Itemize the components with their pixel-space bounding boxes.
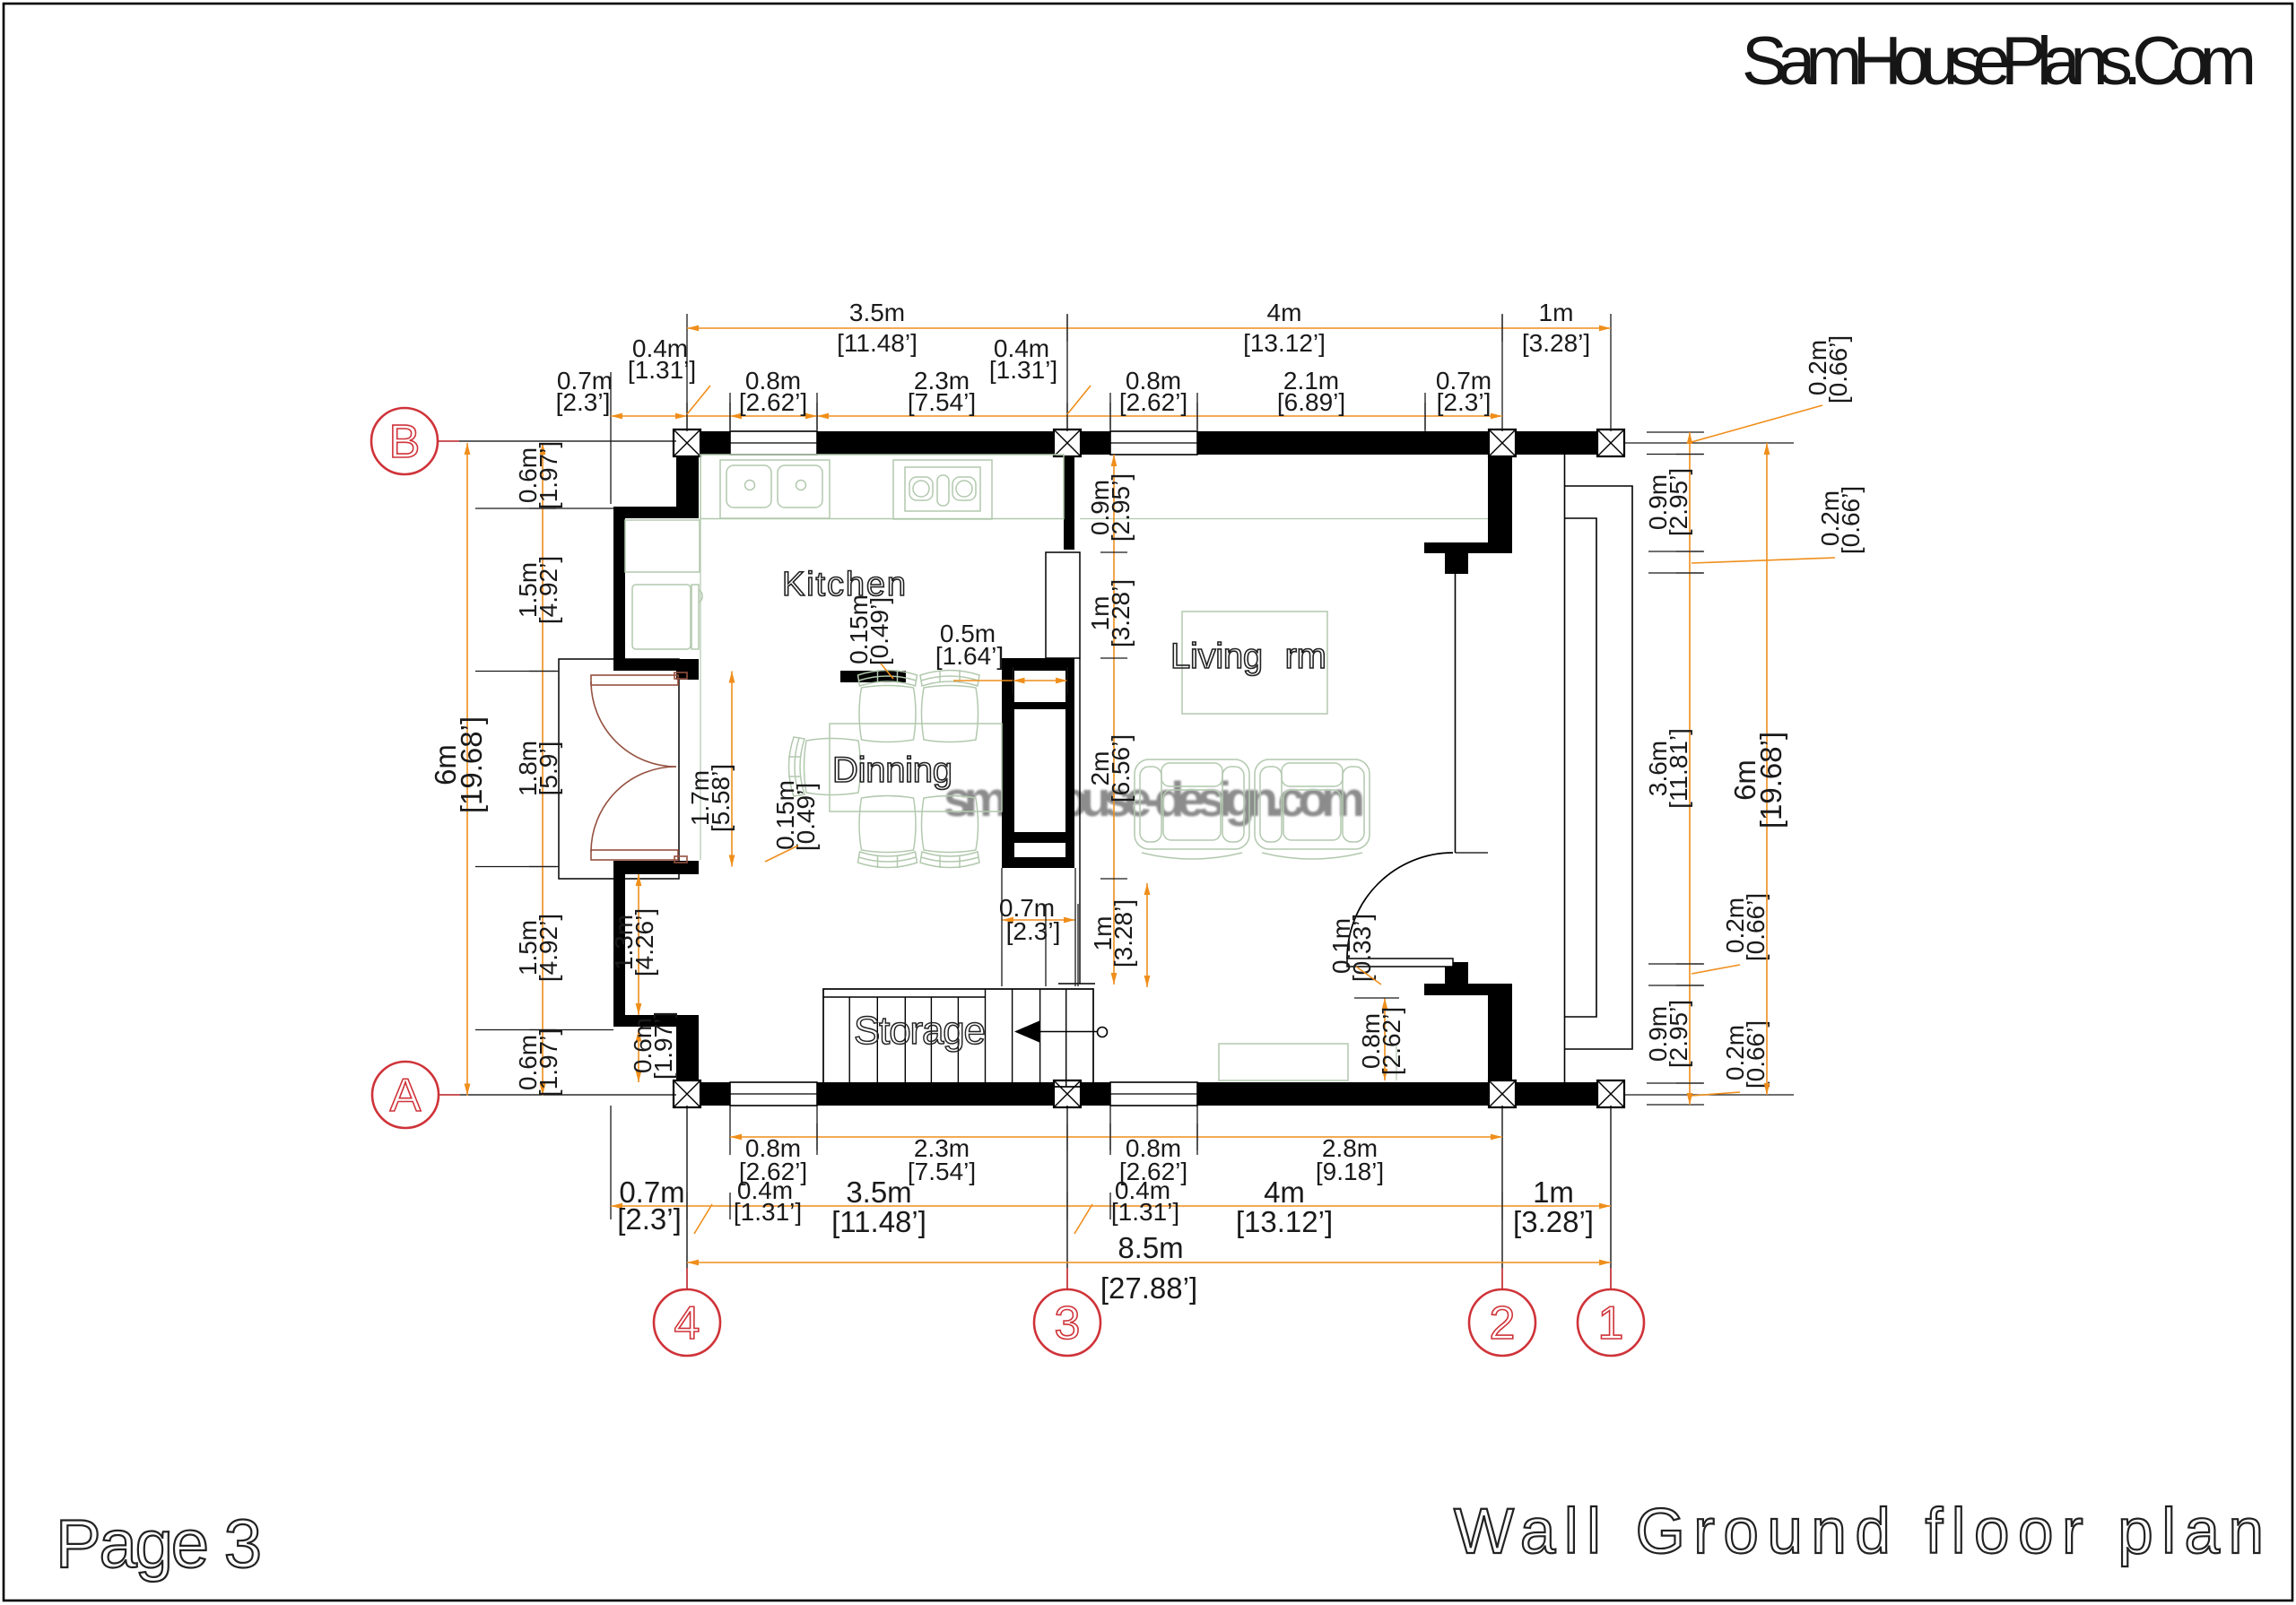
svg-text:3.5m: 3.5m — [849, 299, 905, 326]
svg-text:[1.64’]: [1.64’] — [935, 642, 1004, 670]
svg-text:[3.28’]: [3.28’] — [1107, 579, 1135, 647]
svg-text:[9.18’]: [9.18’] — [1316, 1158, 1384, 1185]
svg-text:[27.88’]: [27.88’] — [1100, 1271, 1197, 1305]
svg-text:[1.97’]: [1.97’] — [535, 1028, 562, 1097]
svg-text:[2.3’]: [2.3’] — [1437, 388, 1492, 416]
svg-text:[0.66’]: [0.66’] — [1742, 1020, 1770, 1089]
svg-text:[11.81’]: [11.81’] — [1665, 728, 1692, 809]
svg-text:[13.12’]: [13.12’] — [1243, 329, 1326, 357]
svg-text:[6.56’]: [6.56’] — [1107, 734, 1135, 802]
svg-text:[2.62’]: [2.62’] — [1378, 1007, 1405, 1075]
svg-text:[3.28’]: [3.28’] — [1109, 899, 1137, 967]
svg-text:[0.66’]: [0.66’] — [1837, 486, 1865, 554]
svg-text:[1.31’]: [1.31’] — [628, 356, 696, 384]
svg-text:[1.31’]: [1.31’] — [1111, 1198, 1179, 1226]
svg-text:A: A — [390, 1070, 422, 1122]
svg-text:[2.62’]: [2.62’] — [1119, 388, 1187, 416]
svg-text:[2.62’]: [2.62’] — [739, 388, 807, 416]
svg-text:8.5m: 8.5m — [1118, 1231, 1183, 1264]
svg-text:[2.95’]: [2.95’] — [1107, 473, 1135, 542]
svg-text:[1.97’]: [1.97’] — [535, 441, 562, 509]
svg-text:2: 2 — [1490, 1297, 1516, 1349]
svg-text:[13.12’]: [13.12’] — [1236, 1205, 1333, 1238]
svg-text:[5.9’]: [5.9’] — [535, 742, 562, 796]
svg-text:Dinning: Dinning — [832, 750, 952, 790]
svg-text:[1.31’]: [1.31’] — [734, 1198, 802, 1226]
svg-text:1m: 1m — [1533, 1176, 1574, 1209]
svg-text:[1.31’]: [1.31’] — [989, 356, 1057, 384]
svg-text:[4.92’]: [4.92’] — [535, 556, 562, 624]
svg-text:[2.95’]: [2.95’] — [1665, 468, 1692, 536]
svg-text:[11.48’]: [11.48’] — [837, 329, 918, 357]
svg-text:[2.3’]: [2.3’] — [617, 1202, 682, 1236]
svg-text:[7.54’]: [7.54’] — [908, 1158, 976, 1185]
svg-text:[19.68’]: [19.68’] — [455, 716, 488, 813]
svg-text:4m: 4m — [1267, 299, 1302, 326]
svg-text:4: 4 — [674, 1297, 700, 1349]
svg-text:SamHousePlans.Com: SamHousePlans.Com — [1742, 23, 2257, 100]
svg-text:[2.3’]: [2.3’] — [1006, 917, 1061, 945]
svg-text:[6.89’]: [6.89’] — [1277, 388, 1345, 416]
svg-text:[0.66’]: [0.66’] — [1824, 335, 1852, 403]
svg-text:[2.95’]: [2.95’] — [1665, 1000, 1692, 1068]
svg-text:[0.66’]: [0.66’] — [1742, 893, 1770, 961]
svg-text:[4.26’]: [4.26’] — [631, 908, 658, 976]
svg-text:4m: 4m — [1264, 1176, 1305, 1209]
svg-text:Wall Ground floor plan: Wall Ground floor plan — [1454, 1497, 2264, 1567]
svg-text:Page 3: Page 3 — [56, 1506, 262, 1583]
svg-text:3: 3 — [1055, 1297, 1081, 1349]
svg-text:[0.49’]: [0.49’] — [792, 783, 820, 851]
svg-text:B: B — [389, 416, 421, 468]
svg-text:1m: 1m — [1539, 299, 1574, 326]
svg-text:[3.28’]: [3.28’] — [1513, 1205, 1594, 1238]
svg-text:Storage: Storage — [854, 1009, 986, 1053]
svg-text:3.5m: 3.5m — [846, 1176, 911, 1209]
svg-text:[5.58’]: [5.58’] — [707, 764, 735, 832]
svg-text:[19.68’]: [19.68’] — [1754, 732, 1787, 829]
svg-text:Living rm: Living rm — [1170, 637, 1326, 676]
svg-text:[7.54’]: [7.54’] — [908, 388, 976, 416]
svg-text:[2.3’]: [2.3’] — [556, 388, 611, 416]
svg-text:[11.48’]: [11.48’] — [831, 1205, 926, 1238]
svg-text:[1.97’]: [1.97’] — [649, 1011, 677, 1080]
svg-text:[4.92’]: [4.92’] — [535, 914, 562, 982]
svg-text:1: 1 — [1598, 1297, 1624, 1349]
svg-text:[3.28’]: [3.28’] — [1522, 329, 1590, 357]
svg-text:[0.33’]: [0.33’] — [1348, 914, 1376, 982]
svg-text:[0.49’]: [0.49’] — [865, 597, 893, 665]
